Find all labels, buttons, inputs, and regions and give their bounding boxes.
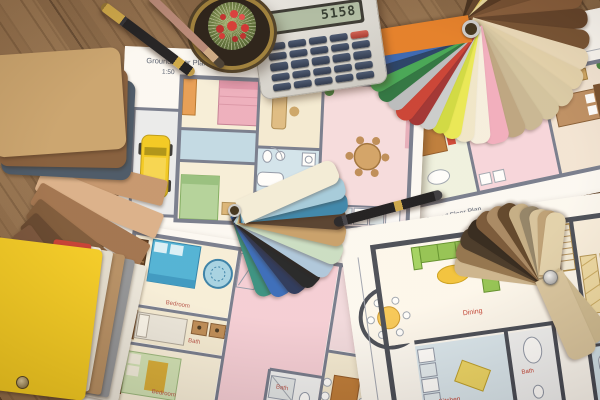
calculator-key [329,33,348,43]
desk-surface: Ground Floor Plan [0,0,600,400]
calculator-key [314,76,333,86]
calculator-lcd-value: 5158 [268,2,362,33]
calculator-key [331,43,350,53]
calculator-keypad [267,30,375,92]
calculator-key [273,82,292,92]
calculator-key [313,66,332,76]
calculator-key [351,40,370,50]
calculator-key [270,62,289,72]
calculator-key [354,60,373,70]
calculator-key [310,46,329,56]
cactus-flowers [227,21,237,31]
calculator-key [271,72,290,82]
binding-screw [16,376,29,389]
calculator-key [289,49,308,59]
calculator-display: 5158 [264,0,364,36]
calculator-key [334,63,353,73]
sample-piece [0,236,103,400]
calculator-key [311,56,330,66]
calculator-key [353,50,372,60]
calculator-key [268,52,287,62]
calculator-key [288,39,307,49]
calculator-key [332,53,351,63]
calculator-key [293,79,312,89]
calculator-key [356,70,375,80]
calculator-key [308,36,327,46]
calculator-key [291,59,310,69]
calculator-key [335,73,354,83]
calculator-key [292,69,311,79]
calculator-key [350,30,369,40]
